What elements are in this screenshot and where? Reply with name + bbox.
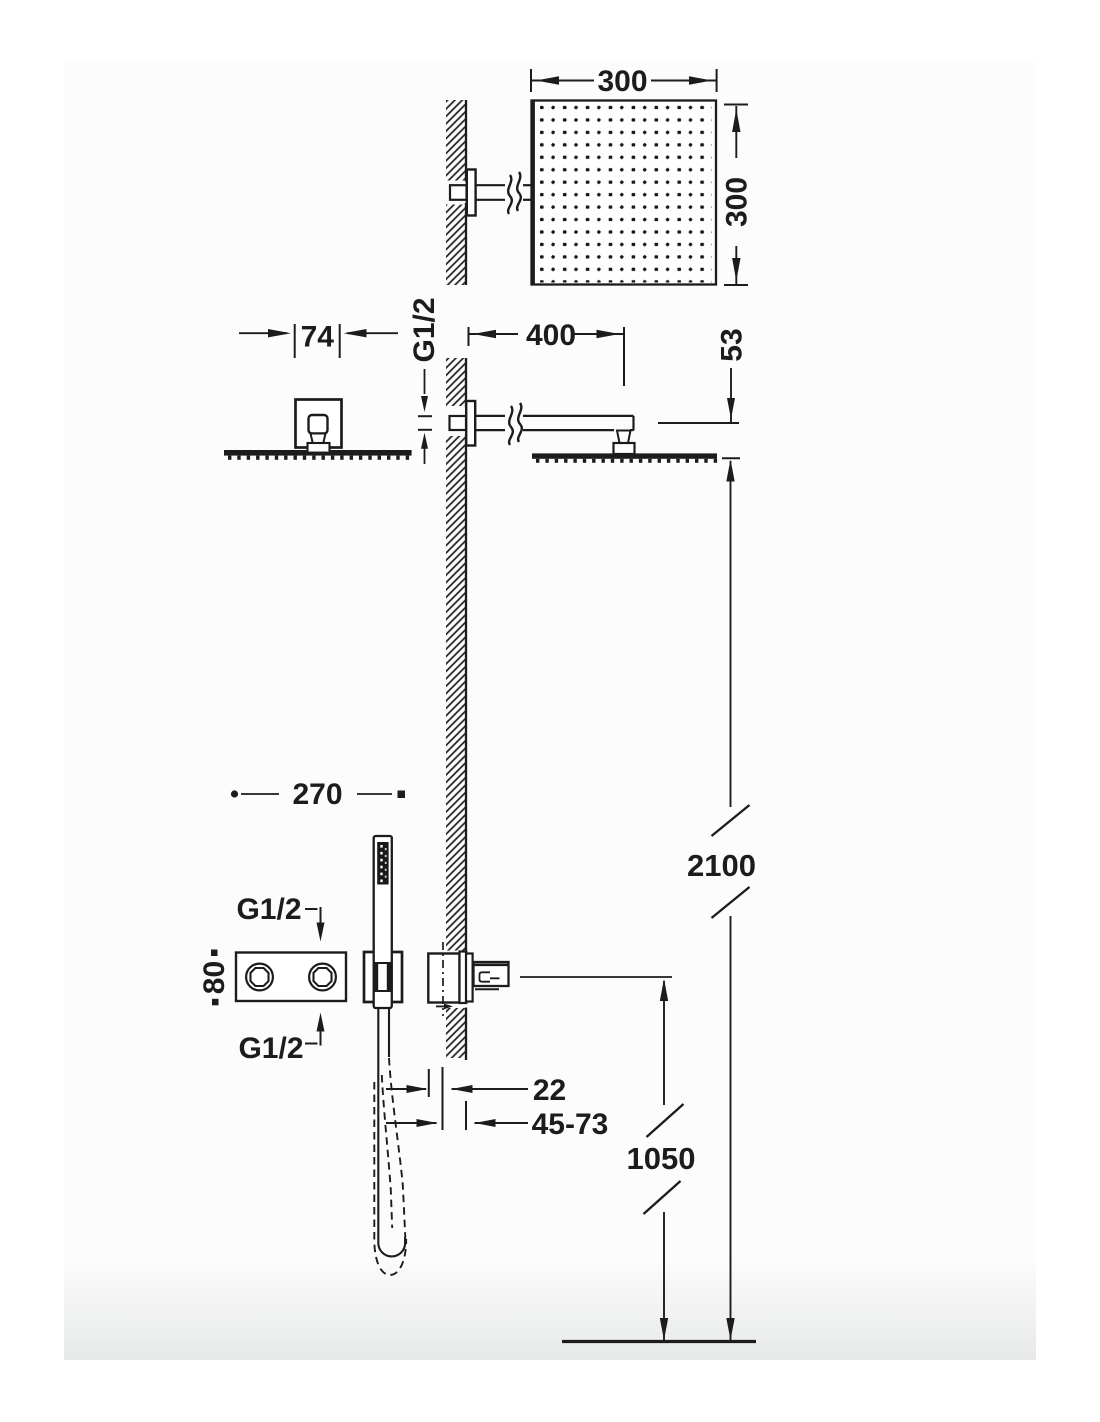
svg-text:22: 22 (533, 1074, 566, 1107)
svg-text:74: 74 (301, 321, 335, 354)
svg-text:300: 300 (597, 65, 647, 98)
svg-text:45-73: 45-73 (532, 1108, 609, 1141)
svg-text:G1/2: G1/2 (236, 893, 301, 926)
svg-text:400: 400 (526, 319, 576, 352)
svg-text:G1/2: G1/2 (238, 1032, 303, 1065)
svg-text:270: 270 (292, 778, 342, 811)
svg-text:G1/2: G1/2 (408, 297, 441, 362)
svg-text:2100: 2100 (687, 848, 756, 883)
svg-text:80: 80 (198, 961, 231, 994)
svg-text:53: 53 (716, 328, 749, 361)
svg-text:300: 300 (721, 177, 754, 227)
svg-text:1050: 1050 (627, 1141, 696, 1176)
